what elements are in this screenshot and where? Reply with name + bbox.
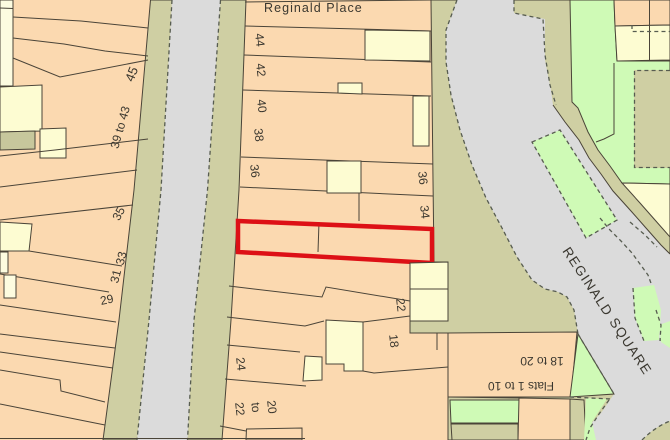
svg-text:Flats 1 to 10: Flats 1 to 10 [488, 379, 554, 393]
svg-text:34: 34 [417, 205, 432, 220]
svg-text:40: 40 [254, 99, 269, 114]
svg-text:18 to 20: 18 to 20 [520, 354, 564, 368]
svg-text:20: 20 [264, 400, 279, 415]
svg-text:22: 22 [232, 402, 247, 417]
svg-text:36: 36 [415, 171, 430, 186]
svg-text:22: 22 [393, 298, 408, 313]
svg-text:38: 38 [251, 128, 266, 143]
svg-text:36: 36 [247, 164, 262, 179]
svg-text:to: to [248, 402, 263, 414]
svg-text:24: 24 [233, 357, 248, 372]
svg-text:Reginald Place: Reginald Place [264, 1, 363, 15]
svg-text:44: 44 [252, 33, 267, 48]
svg-text:42: 42 [253, 63, 268, 78]
svg-text:18: 18 [386, 334, 401, 349]
